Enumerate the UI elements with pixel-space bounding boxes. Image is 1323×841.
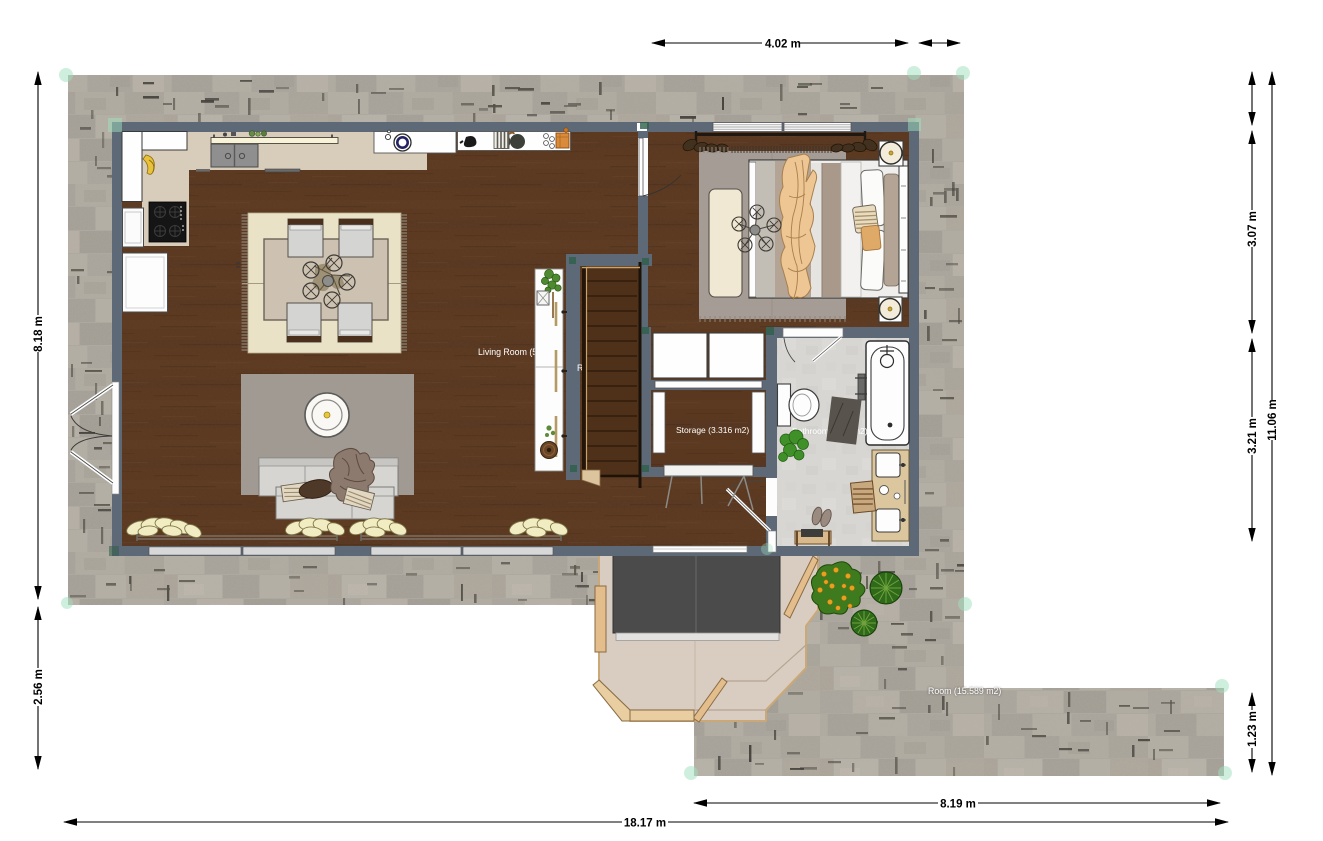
svg-text:Storage (3.316 m2): Storage (3.316 m2) — [676, 425, 749, 435]
svg-text:3.07 m: 3.07 m — [1247, 211, 1259, 247]
svg-text:4.02 m: 4.02 m — [765, 39, 801, 51]
svg-text:18.17 m: 18.17 m — [624, 818, 666, 830]
svg-text:2.56 m: 2.56 m — [33, 669, 45, 705]
svg-text:Room (15.589 m2): Room (15.589 m2) — [928, 686, 1001, 696]
svg-text:8.18 m: 8.18 m — [33, 316, 45, 352]
svg-text:Living Room (50: Living Room (50 — [478, 347, 542, 357]
svg-text:11.06 m: 11.06 m — [1267, 399, 1279, 441]
svg-text:1.23 m: 1.23 m — [1247, 711, 1259, 747]
svg-text:8.19 m: 8.19 m — [940, 799, 976, 811]
svg-text:3.21 m: 3.21 m — [1247, 418, 1259, 454]
